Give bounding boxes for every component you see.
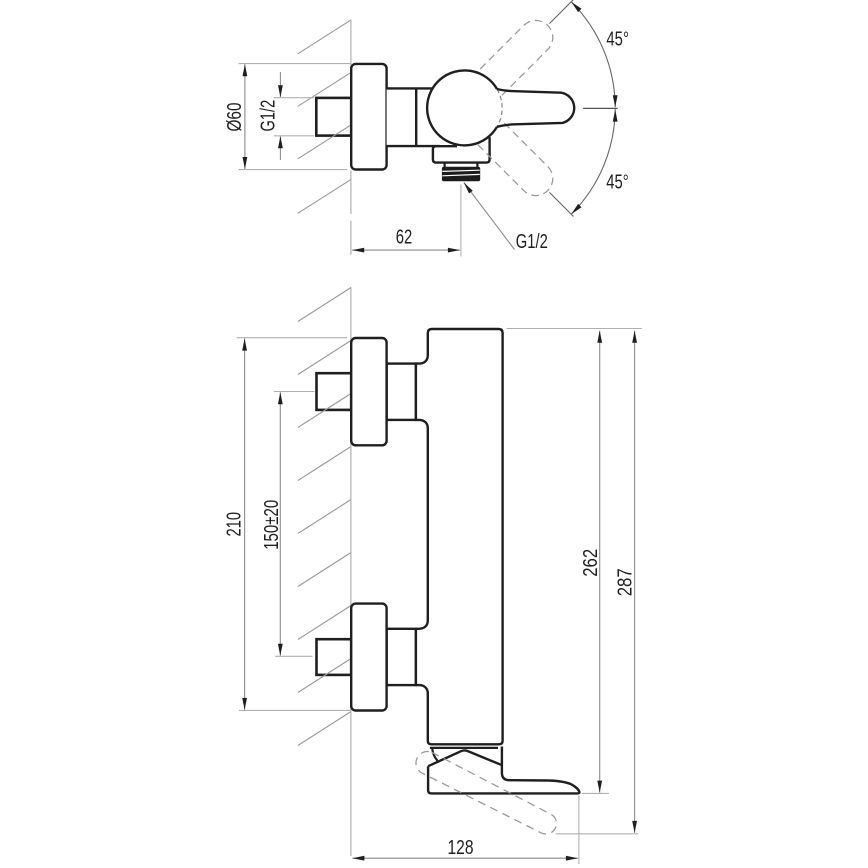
svg-text:G1/2: G1/2 bbox=[258, 100, 280, 132]
svg-text:262: 262 bbox=[580, 549, 602, 577]
svg-text:128: 128 bbox=[448, 837, 474, 859]
svg-text:Ø60: Ø60 bbox=[224, 103, 246, 132]
svg-text:62: 62 bbox=[396, 226, 413, 248]
svg-text:210: 210 bbox=[224, 512, 246, 537]
svg-text:45°: 45° bbox=[606, 28, 629, 50]
svg-text:150±20: 150±20 bbox=[261, 500, 283, 550]
svg-text:G1/2: G1/2 bbox=[516, 231, 548, 253]
svg-text:45°: 45° bbox=[606, 172, 629, 194]
svg-text:287: 287 bbox=[615, 568, 637, 596]
